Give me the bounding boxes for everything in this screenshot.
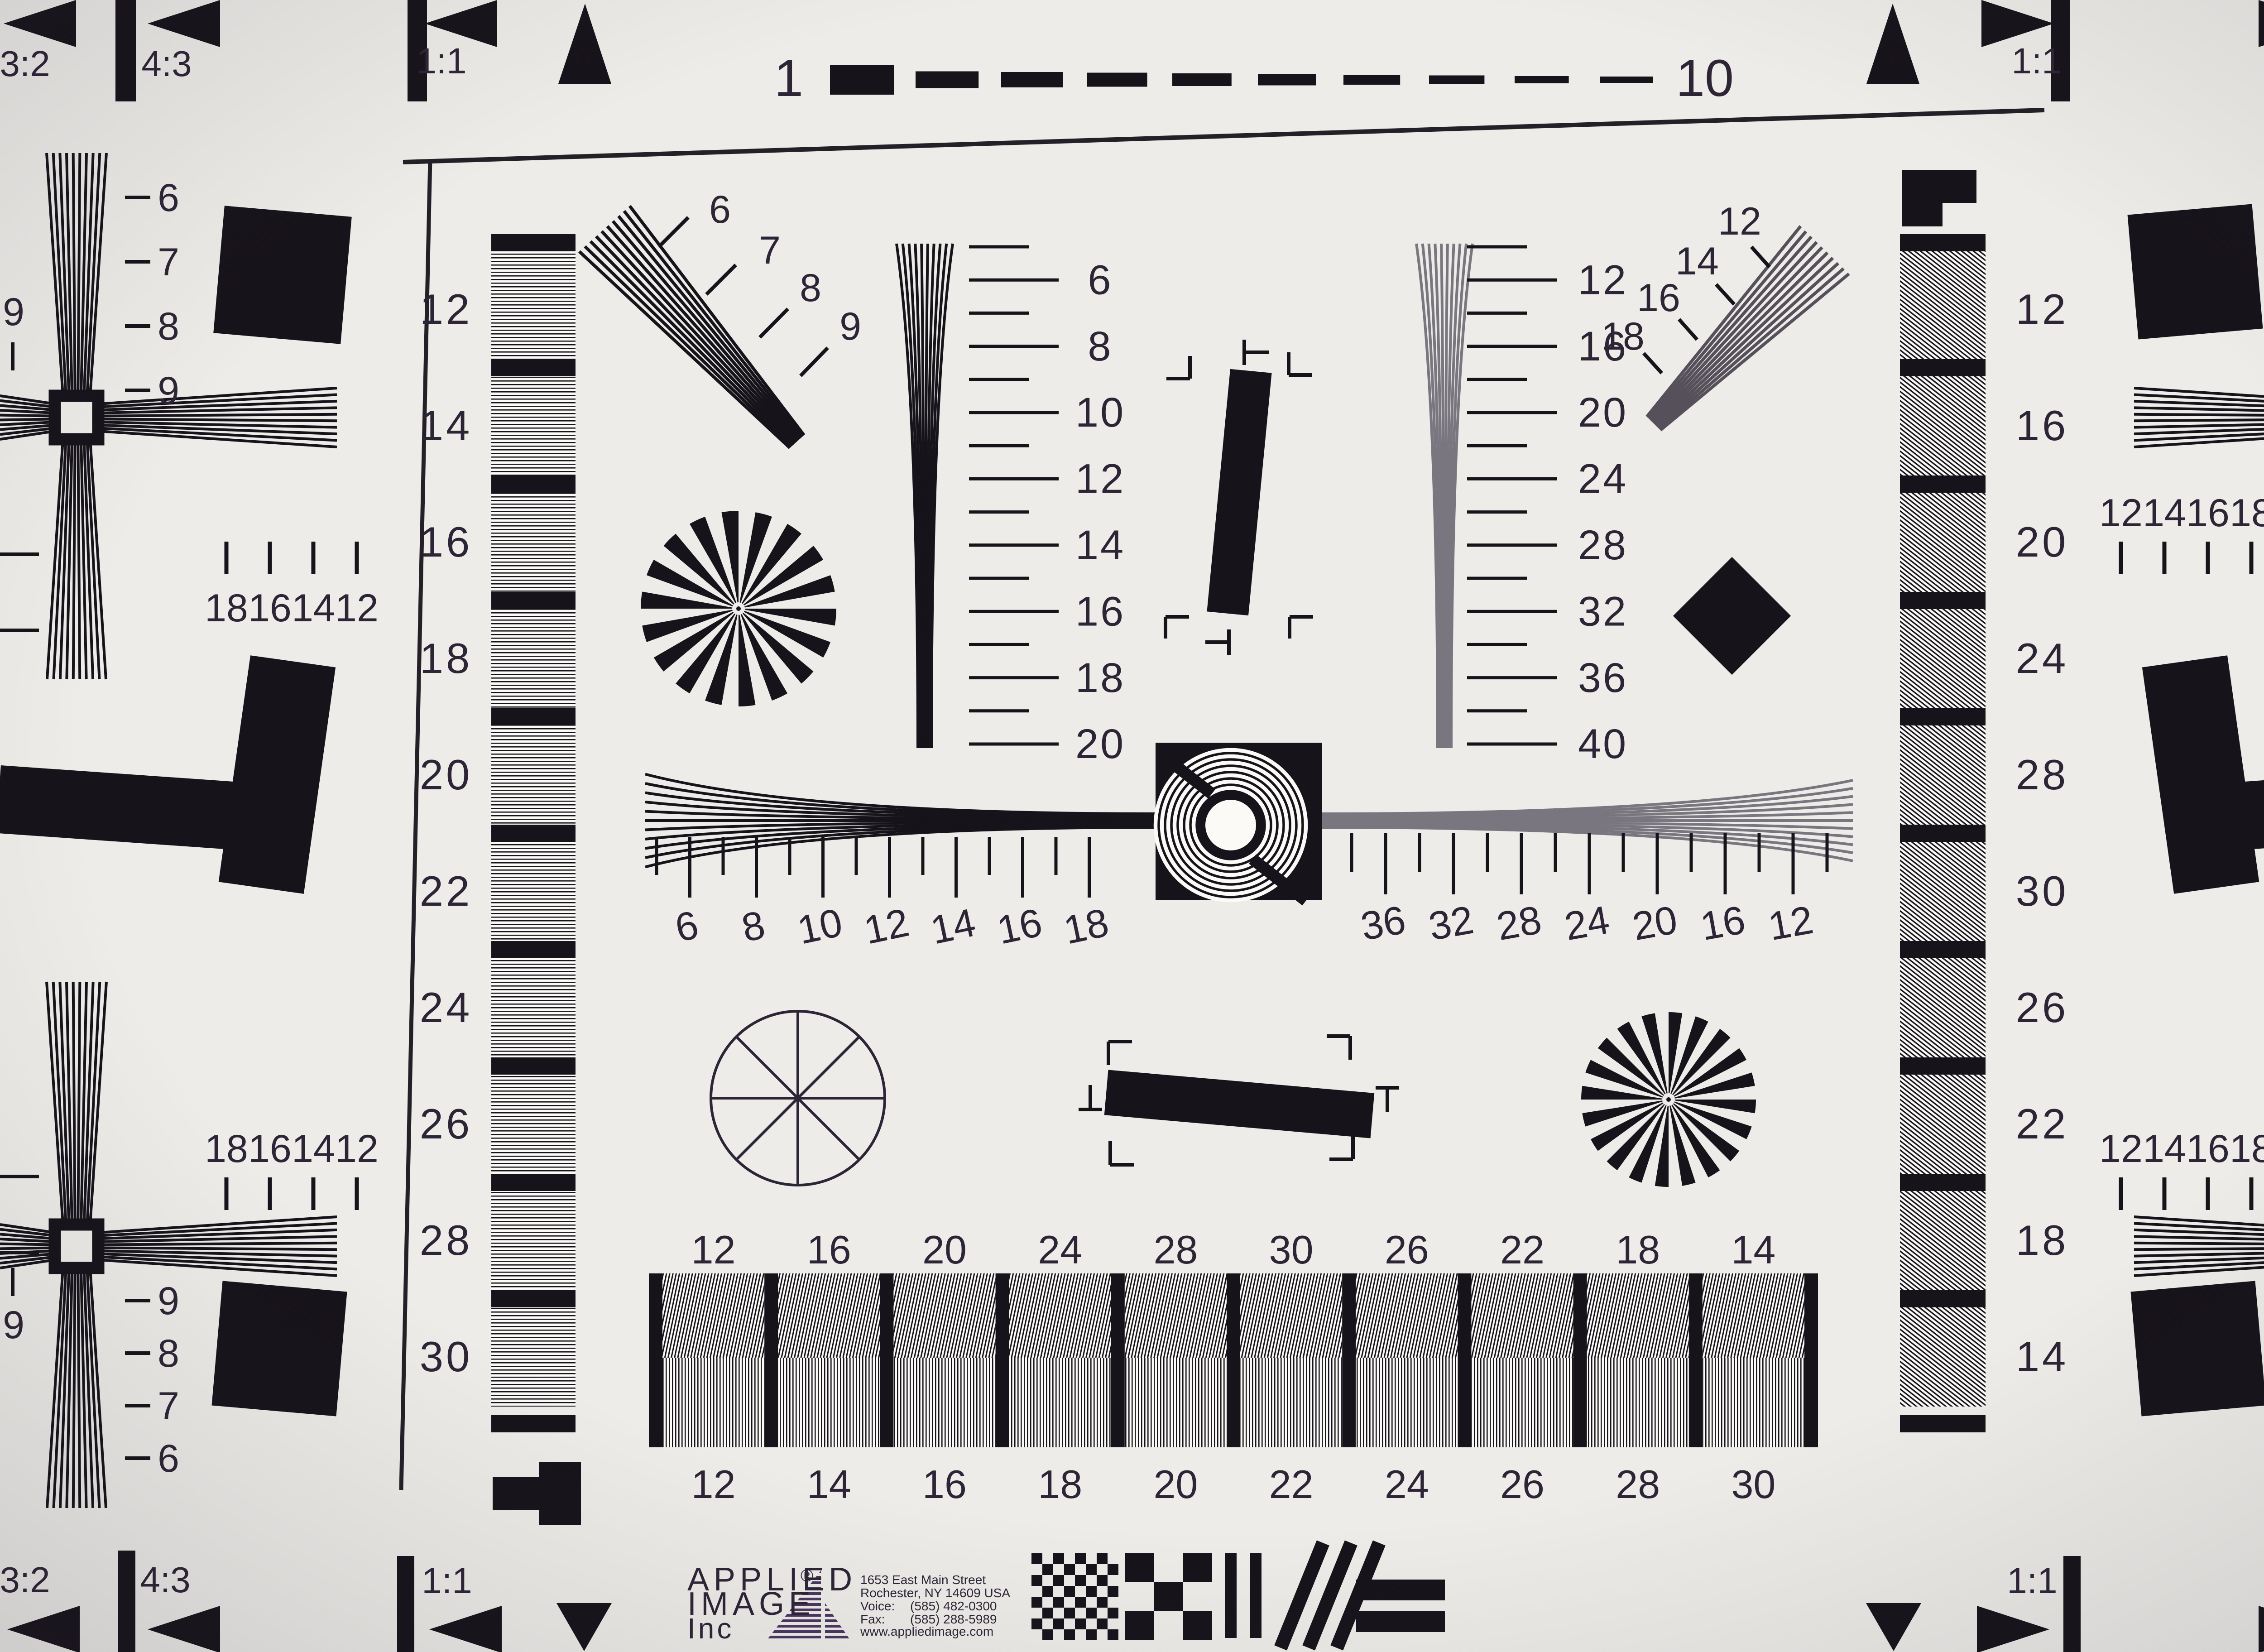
bottom-bar-separator — [1111, 1273, 1125, 1447]
corner-bar — [2063, 1556, 2081, 1652]
fan-line — [73, 153, 75, 396]
step-stripes — [1900, 842, 1986, 941]
bottom-seg-tilt — [1240, 1273, 1342, 1358]
column-separator — [491, 941, 576, 958]
edge-scale-label: 8 — [158, 305, 179, 348]
wedge-right-scale-label: 32 — [1578, 588, 1628, 634]
fan-line — [0, 415, 55, 416]
edge-corner-digit: 9 — [3, 1303, 24, 1347]
logo-address-line: 1653 East Main Street — [860, 1573, 986, 1587]
checker-cell — [1108, 1629, 1118, 1640]
checker-cell — [1097, 1553, 1108, 1564]
left-column-label: 20 — [420, 751, 473, 798]
fan-line — [98, 1243, 337, 1245]
bottom-bar-bottom-label: 30 — [1731, 1462, 1775, 1507]
edge-scale-label: 6 — [158, 176, 179, 220]
cross-tick-label: 14 — [2143, 491, 2186, 535]
step-stripes — [491, 1307, 576, 1407]
ring-core — [1205, 800, 1256, 850]
bottom-bar-separator — [880, 1273, 893, 1447]
right-column-label: 18 — [2016, 1216, 2069, 1264]
step-stripes — [491, 493, 576, 592]
checker-cell — [1086, 1629, 1097, 1640]
bottom-seg-vert — [1125, 1358, 1227, 1447]
bottom-bar-bottom-label: 24 — [1385, 1462, 1429, 1507]
column-cap — [1900, 234, 1986, 251]
checker-cell — [1042, 1564, 1053, 1575]
checker-cell — [1053, 1618, 1064, 1629]
aspect-label-1-1: 1:1 — [416, 41, 466, 81]
top-scale-dash — [916, 72, 979, 88]
corner-bar — [397, 1556, 414, 1652]
bottom-bar-bottom-label: 28 — [1616, 1462, 1660, 1507]
cross-tick-label: 14 — [2143, 1127, 2186, 1171]
siemens-star-right — [1581, 1012, 1756, 1187]
checker-cell — [1053, 1553, 1064, 1564]
column-separator — [491, 359, 576, 376]
checker-cell — [1075, 1618, 1086, 1629]
bottom-seg-vert — [893, 1358, 995, 1447]
bottom-bar-bottom-label: 16 — [922, 1462, 967, 1507]
wedge-left-scale-label: 18 — [1075, 655, 1125, 701]
bottom-bar-bottom-label: 12 — [691, 1462, 736, 1507]
logo-website: www.appliedimage.com — [860, 1624, 993, 1638]
checker-cell — [1086, 1564, 1097, 1575]
bottom-bar-top-label: 24 — [1038, 1227, 1082, 1272]
logo-line3: Inc — [687, 1612, 734, 1645]
h-scale-right-label: 12 — [1765, 897, 1817, 949]
h-scale-right-label: 16 — [1697, 897, 1749, 949]
black-square — [211, 1281, 347, 1416]
bottom-bar-top-label: 12 — [691, 1227, 736, 1272]
bottom-bar-bottom-label: 22 — [1269, 1462, 1314, 1507]
cross-tick-label: 16 — [248, 1127, 292, 1171]
cross-tick-label: 18 — [2230, 1127, 2264, 1171]
aspect-label-1-1: 1:1 — [2007, 1561, 2057, 1601]
bottom-seg-tilt — [778, 1273, 880, 1358]
column-cap — [491, 1415, 576, 1432]
fan-line — [78, 439, 80, 679]
cross-tick-label: 16 — [2186, 491, 2230, 535]
h-scale-left-label: 14 — [926, 900, 979, 953]
top-scale-dash — [1087, 73, 1147, 87]
step-stripes — [1900, 251, 1986, 359]
column-separator — [491, 592, 576, 609]
logo-registered-mark: ® — [801, 1566, 813, 1585]
h-scale-left-label: 16 — [993, 900, 1046, 953]
aspect-label-4-3: 4:3 — [141, 43, 192, 84]
column-separator — [1900, 475, 1986, 493]
checker-cell — [1097, 1618, 1108, 1629]
step-stripes — [1900, 493, 1986, 592]
vertical-bar-pattern — [1225, 1553, 1237, 1638]
bottom-bar-bottom-label: 26 — [1500, 1462, 1545, 1507]
step-stripes — [1900, 376, 1986, 475]
cross-tick-label: 16 — [2186, 1127, 2230, 1171]
left-column-label: 24 — [420, 984, 473, 1031]
step-stripes — [1900, 958, 1986, 1057]
bottom-seg-vert — [1587, 1358, 1689, 1447]
aspect-label-3-2: 3:2 — [0, 1560, 50, 1600]
column-separator — [491, 708, 576, 725]
bottom-bar-top-label: 16 — [807, 1227, 851, 1272]
checker-cell — [1042, 1629, 1053, 1640]
diag-right-label: 16 — [1637, 276, 1680, 320]
column-separator — [1900, 708, 1986, 725]
top-scale-dash — [1172, 73, 1232, 86]
fan-line — [73, 982, 75, 1225]
h-scale-right-label: 36 — [1357, 897, 1409, 949]
cross-tick-label: 12 — [335, 1127, 379, 1171]
step-stripes — [491, 958, 576, 1057]
fan-line — [2134, 419, 2264, 421]
h-scale-left-label: 12 — [860, 900, 912, 953]
checker-cell — [1075, 1553, 1086, 1564]
black-square — [2127, 204, 2263, 339]
step-stripes — [1900, 1191, 1986, 1290]
cross-tick-label: 18 — [205, 586, 248, 630]
step-stripes — [1900, 609, 1986, 708]
top-scale-dash — [1258, 74, 1316, 86]
bottom-seg-vert — [1471, 1358, 1573, 1447]
diag-left-label: 8 — [800, 266, 821, 310]
checker-cell — [1125, 1611, 1154, 1640]
wedge-left-scale-label: 8 — [1088, 323, 1113, 370]
checker-cell — [1183, 1553, 1212, 1582]
top-scale-dash — [1600, 77, 1653, 83]
right-column-label: 20 — [2016, 518, 2069, 566]
left-column-label: 12 — [420, 285, 473, 333]
bottom-bar-top-label: 30 — [1269, 1227, 1314, 1272]
black-square — [2130, 1281, 2264, 1416]
h-scale-left-label: 10 — [793, 900, 846, 953]
right-column-label: 16 — [2016, 402, 2069, 449]
iso-resolution-test-chart: 1103:24:31:13:24:31:13:24:31:13:24:31:11… — [0, 0, 2264, 1652]
column-separator — [491, 1290, 576, 1307]
column-separator — [1900, 1174, 1986, 1191]
checker-cell — [1064, 1608, 1075, 1618]
edge-scale-label: 9 — [158, 1279, 179, 1323]
bottom-bar-separator — [649, 1273, 662, 1447]
bottom-bar-bottom-label: 18 — [1038, 1462, 1082, 1507]
checker-cell — [1064, 1564, 1075, 1575]
top-scale-dash — [1001, 72, 1063, 87]
wedge-right-scale-label: 20 — [1578, 389, 1628, 436]
checker-cell — [1183, 1611, 1212, 1640]
checker-cell — [1064, 1586, 1075, 1597]
cross-tick-label: 18 — [205, 1127, 248, 1171]
fan-line — [0, 419, 55, 420]
fan-line — [98, 414, 337, 416]
cross-tick-label: 14 — [292, 1127, 335, 1171]
wedge-left-scale-label: 10 — [1075, 389, 1125, 436]
column-separator — [491, 825, 576, 842]
checker-cell — [1042, 1608, 1053, 1618]
checker-cell — [1086, 1608, 1097, 1618]
checker-cell — [1075, 1597, 1086, 1608]
right-column-label: 26 — [2016, 984, 2069, 1031]
column-separator — [491, 1057, 576, 1075]
checker-cell — [1064, 1629, 1075, 1640]
fan-line — [73, 439, 75, 679]
checker-cell — [1031, 1597, 1042, 1608]
diag-left-label: 9 — [839, 305, 861, 348]
checker-cell — [1154, 1582, 1183, 1611]
diag-right-label: 14 — [1675, 240, 1719, 283]
wedge-left-scale-label: 14 — [1075, 522, 1125, 568]
cross-tick-label: 16 — [248, 586, 292, 630]
aspect-label-3-2: 3:2 — [0, 43, 50, 84]
left-column-label: 26 — [420, 1100, 473, 1148]
fan-line — [73, 1268, 75, 1508]
left-column-label: 14 — [420, 402, 473, 449]
column-separator — [1900, 1057, 1986, 1075]
edge-scale-label: 8 — [158, 1332, 179, 1375]
edge-scale-label: 7 — [158, 240, 179, 284]
checker-cell — [1031, 1553, 1042, 1564]
bottom-bar-separator — [996, 1273, 1009, 1447]
bottom-bar-separator — [764, 1273, 778, 1447]
wedge-right-scale-label: 16 — [1578, 323, 1628, 370]
bottom-bar-separator — [1342, 1273, 1356, 1447]
wedge-right-scale-label: 40 — [1578, 721, 1628, 767]
edge-scale-label: 9 — [158, 369, 179, 413]
h-scale-right-label: 20 — [1629, 897, 1681, 949]
cross-tick-label: 18 — [2230, 491, 2264, 535]
column-separator — [1900, 941, 1986, 958]
star-dot — [736, 606, 741, 611]
h-scale-right-label: 24 — [1561, 897, 1613, 949]
fan-line — [0, 1244, 55, 1245]
right-column-label: 22 — [2016, 1100, 2069, 1148]
step-stripes — [491, 376, 576, 475]
column-cap — [491, 234, 576, 251]
bottom-bar-top-label: 20 — [922, 1227, 967, 1272]
diag-left-label: 6 — [709, 188, 731, 231]
checker-cell — [1097, 1575, 1108, 1586]
bottom-bar-top-label: 26 — [1385, 1227, 1429, 1272]
fan-line — [78, 153, 80, 396]
bottom-seg-vert — [662, 1358, 764, 1447]
fan-line — [98, 419, 337, 421]
step-stripes — [491, 725, 576, 825]
wedge-left-scale-label: 12 — [1075, 456, 1125, 502]
bottom-seg-vert — [778, 1358, 880, 1447]
bottom-seg-vert — [1009, 1358, 1111, 1447]
step-stripes — [491, 842, 576, 941]
fan-line — [78, 1268, 80, 1508]
fan-line — [2134, 1243, 2264, 1245]
corner-bar — [118, 1551, 135, 1652]
top-scale-dash — [1429, 76, 1484, 84]
checker-cell — [1031, 1575, 1042, 1586]
right-column-label: 30 — [2016, 867, 2069, 915]
top-scale-end-label: 10 — [1676, 49, 1734, 107]
bottom-bar-separator — [1689, 1273, 1703, 1447]
column-separator — [1900, 1290, 1986, 1307]
column-separator — [1900, 359, 1986, 376]
aspect-label-1-1: 1:1 — [2011, 41, 2062, 81]
wedge-right-scale-label: 36 — [1578, 655, 1628, 701]
cross-tick-label: 12 — [2099, 1127, 2143, 1171]
wedge-right-scale-label: 12 — [1578, 257, 1628, 303]
checker-cell — [1108, 1564, 1118, 1575]
fan-line — [78, 982, 80, 1225]
logo-voice-label: Voice: — [860, 1599, 895, 1613]
wedge-right-scale-label: 28 — [1578, 522, 1628, 568]
step-stripes — [1900, 1307, 1986, 1407]
step-stripes — [491, 609, 576, 708]
bottom-seg-tilt — [1125, 1273, 1227, 1358]
bottom-bar-bottom-label: 14 — [807, 1462, 851, 1507]
left-column-label: 30 — [420, 1333, 473, 1380]
column-separator — [1900, 825, 1986, 842]
step-stripes — [1900, 1075, 1986, 1174]
step-stripes — [1900, 725, 1986, 825]
top-scale-dash — [830, 65, 894, 95]
bottom-bar-top-label: 22 — [1500, 1227, 1545, 1272]
logo-voice-number: (585) 482-0300 — [910, 1599, 997, 1613]
bottom-seg-tilt — [893, 1273, 995, 1358]
bottom-seg-vert — [1356, 1358, 1458, 1447]
left-column-label: 18 — [420, 634, 473, 682]
bottom-seg-tilt — [662, 1273, 764, 1358]
column-separator — [491, 1174, 576, 1191]
bottom-seg-tilt — [1703, 1273, 1804, 1358]
fan-line — [2134, 414, 2264, 416]
checker-cell — [1086, 1586, 1097, 1597]
aspect-triangle — [2259, 1606, 2264, 1652]
step-stripes — [491, 1191, 576, 1290]
aspect-triangle — [2259, 0, 2264, 47]
top-scale-start-label: 1 — [774, 49, 803, 107]
edge-scale-label: 7 — [158, 1384, 179, 1428]
checker-cell — [1053, 1597, 1064, 1608]
horizontal-bar-pattern — [1356, 1611, 1445, 1632]
right-column-label: 28 — [2016, 751, 2069, 798]
diag-right-label: 12 — [1718, 200, 1761, 243]
bottom-seg-vert — [1240, 1358, 1342, 1447]
left-column-label: 22 — [420, 867, 473, 915]
step-stripes — [491, 1075, 576, 1174]
edge-scale-label: 6 — [158, 1437, 179, 1480]
cross-tick-label: 12 — [335, 586, 379, 630]
bottom-bar-separator — [1804, 1273, 1818, 1447]
black-square — [213, 206, 352, 344]
left-column-label: 28 — [420, 1216, 473, 1264]
wedge-right-scale-label: 24 — [1578, 456, 1628, 502]
wedge-left-scale-label: 6 — [1088, 257, 1113, 303]
edge-corner-digit: 9 — [3, 290, 24, 334]
top-scale-dash — [1343, 75, 1400, 85]
bottom-seg-tilt — [1471, 1273, 1573, 1358]
bottom-seg-tilt — [1356, 1273, 1458, 1358]
h-scale-left-label: 18 — [1060, 900, 1112, 953]
diag-left-label: 7 — [759, 229, 781, 272]
right-column-label: 24 — [2016, 634, 2069, 682]
checker-cell — [1097, 1597, 1108, 1608]
horizontal-bar-pattern — [1356, 1580, 1445, 1600]
checker-cell — [1031, 1618, 1042, 1629]
cross-tick-label: 12 — [2099, 491, 2143, 535]
h-scale-right-label: 32 — [1425, 897, 1477, 949]
bottom-bar-top-label: 14 — [1731, 1227, 1775, 1272]
checker-cell — [1042, 1586, 1053, 1597]
segmented-circle — [711, 1011, 885, 1185]
wedge-left-scale-label: 20 — [1075, 721, 1125, 767]
bottom-bar-top-label: 18 — [1616, 1227, 1660, 1272]
bottom-seg-vert — [1703, 1358, 1804, 1447]
column-separator — [491, 475, 576, 493]
star-dot — [1666, 1097, 1671, 1102]
right-column-label: 12 — [2016, 285, 2069, 333]
column-cap — [1900, 1415, 1986, 1432]
right-column-label: 14 — [2016, 1333, 2069, 1380]
corner-bar — [115, 0, 136, 101]
left-column-label: 16 — [420, 518, 473, 566]
bottom-seg-tilt — [1009, 1273, 1111, 1358]
step-stripes — [491, 251, 576, 359]
fan-line — [0, 1248, 55, 1249]
column-separator — [1900, 592, 1986, 609]
checker-cell — [1108, 1608, 1118, 1618]
bottom-seg-tilt — [1587, 1273, 1689, 1358]
bottom-bar-separator — [1573, 1273, 1587, 1447]
aspect-label-1-1: 1:1 — [422, 1561, 472, 1601]
checker-cell — [1053, 1575, 1064, 1586]
h-scale-right-label: 28 — [1493, 897, 1545, 949]
checker-cell — [1125, 1553, 1154, 1582]
cross-tick-label: 14 — [292, 586, 335, 630]
fan-line — [2134, 1248, 2264, 1249]
bottom-bar-top-label: 28 — [1153, 1227, 1198, 1272]
bottom-bar-separator — [1458, 1273, 1471, 1447]
checker-cell — [1075, 1575, 1086, 1586]
bottom-bar-separator — [1227, 1273, 1240, 1447]
wedge-left-scale-label: 16 — [1075, 588, 1125, 634]
checker-cell — [1108, 1586, 1118, 1597]
vertical-bar-pattern — [1250, 1553, 1262, 1638]
logo-address-line: Rochester, NY 14609 USA — [860, 1586, 1010, 1600]
aspect-label-4-3: 4:3 — [140, 1560, 190, 1600]
fan-line — [98, 1248, 337, 1249]
top-scale-dash — [1515, 76, 1569, 83]
bottom-bar-bottom-label: 20 — [1153, 1462, 1198, 1507]
